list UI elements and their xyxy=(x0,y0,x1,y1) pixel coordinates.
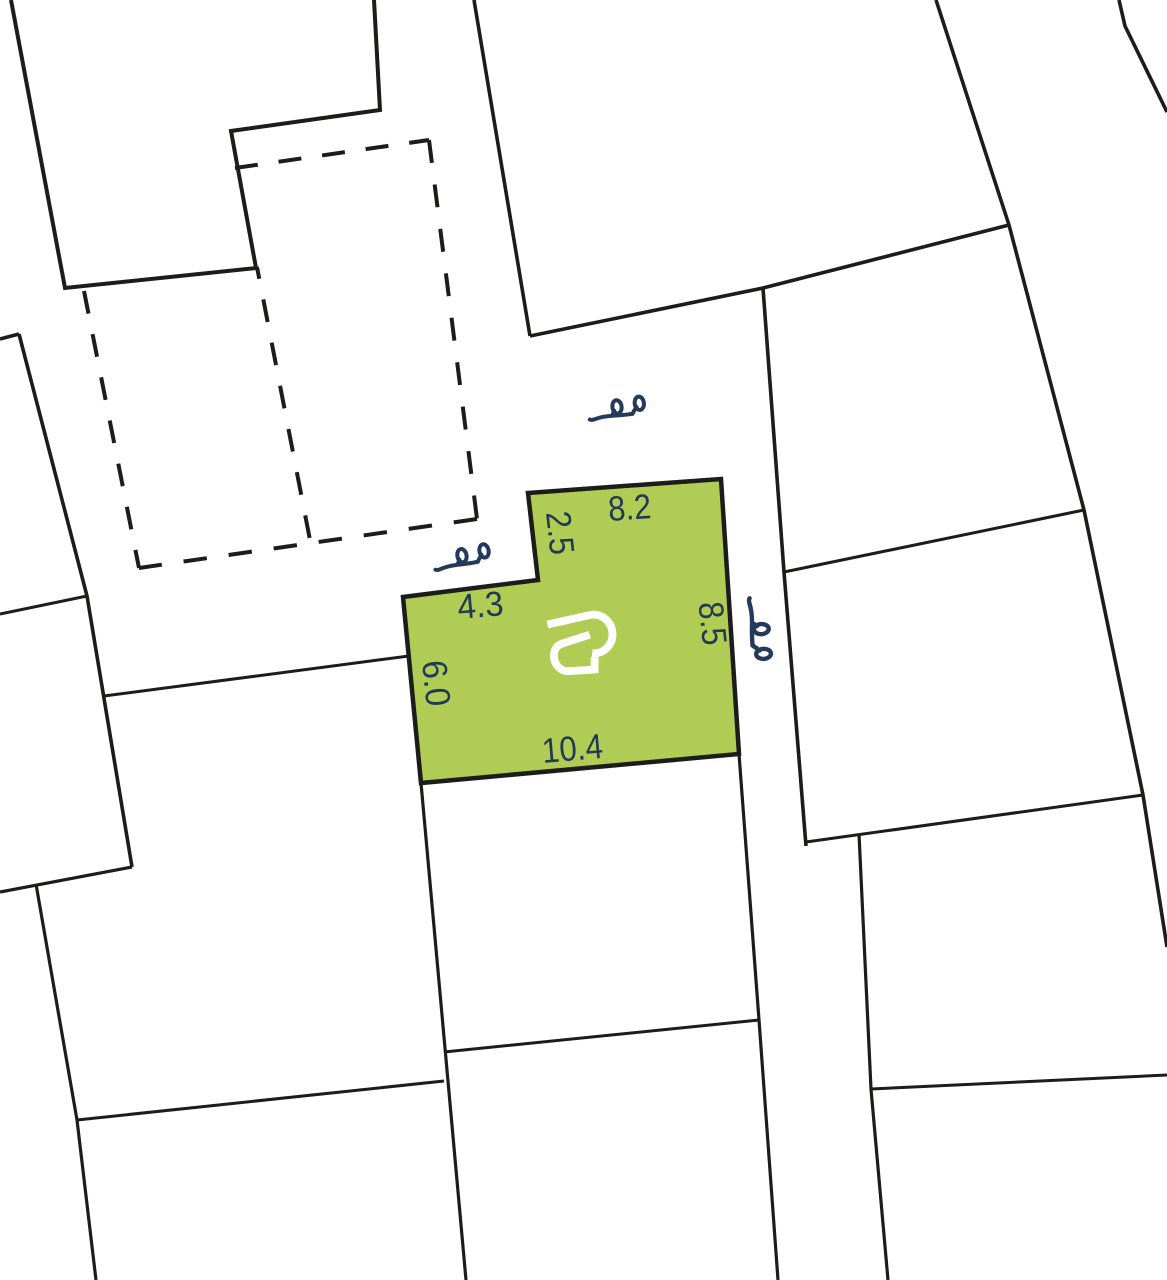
svg-text:4.3: 4.3 xyxy=(456,584,505,627)
svg-text:8.2: 8.2 xyxy=(607,487,653,529)
svg-text:10.4: 10.4 xyxy=(540,727,604,771)
svg-text:6.0: 6.0 xyxy=(414,658,458,708)
svg-text:8.5: 8.5 xyxy=(691,600,734,647)
svg-text:2.5: 2.5 xyxy=(538,509,581,556)
